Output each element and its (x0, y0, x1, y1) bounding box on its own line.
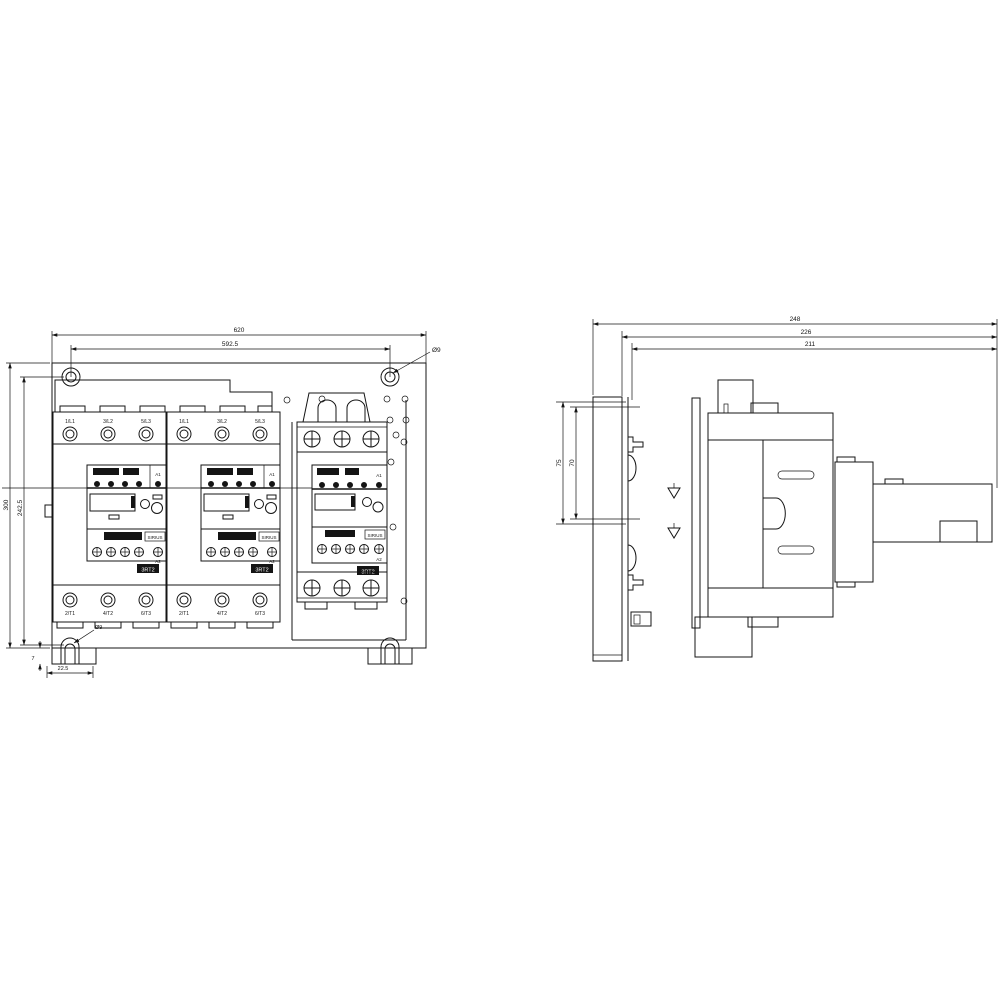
dim-side-height-outer: 75 (556, 402, 626, 524)
rating-label-bar (325, 530, 355, 537)
grip-notch (763, 498, 785, 529)
aux-screw-row (319, 482, 382, 488)
busbar-screw (304, 580, 379, 596)
dim-label: Ø9 (95, 625, 102, 631)
terminal-label: 1/L1 (65, 419, 75, 425)
busbar-bracket (873, 484, 992, 542)
aux-label-bar (123, 468, 139, 475)
terminal-label: 6/T3 (255, 611, 265, 617)
latch-spring (628, 545, 636, 571)
mount-marker (668, 528, 680, 538)
top-terminal-cover (718, 380, 753, 413)
coil-terminal-a2: A2 (376, 557, 382, 562)
dim-label: 248 (790, 316, 801, 323)
dim-front-height-outer: 300 (3, 363, 50, 648)
brand-label: SIRIUS (261, 535, 276, 540)
dimensional-drawing: 1/L1 3/L2 5/L3 A1 (0, 0, 1000, 1000)
drawing-sheet: 1/L1 3/L2 5/L3 A1 (0, 0, 1000, 1000)
type-label: 3RT2 (141, 568, 154, 574)
terminal-label: 3/L2 (103, 419, 113, 425)
contactor-profile (695, 380, 833, 657)
dim-label: 242.5 (17, 499, 24, 516)
callout-corner-hole: Ø9 (393, 347, 441, 373)
nameplate-window (204, 494, 249, 511)
contactor-module: A1 SIRIUS (87, 465, 166, 564)
contactor-module: A1 SIRIUS (201, 465, 280, 564)
terminal-label: 4/T2 (103, 611, 113, 617)
aux-label-bar (207, 468, 233, 475)
terminal-screw (177, 427, 267, 441)
aux-label-bar (345, 468, 359, 475)
contactor-module: A1 SIRIUS (312, 465, 387, 563)
indicator-button (373, 502, 383, 512)
terminal-label: 4/T2 (217, 611, 227, 617)
terminal-label: 6/T3 (141, 611, 151, 617)
dim-side-height-inner: 70 (569, 407, 640, 519)
din-clip-bottom (628, 575, 643, 590)
rating-label-bar (104, 532, 142, 540)
dim-label: 300 (3, 499, 10, 510)
dim-side-depth-mid: 226 (622, 329, 997, 396)
brand-label: SIRIUS (367, 533, 382, 538)
plate-edge (593, 397, 622, 661)
aux-label-bar (93, 468, 119, 475)
terminal-screw (63, 427, 153, 441)
dim-label: 592.5 (222, 341, 239, 348)
indicator-button (363, 498, 372, 507)
nameplate-window (315, 494, 355, 510)
front-view: 1/L1 3/L2 5/L3 A1 (2, 327, 441, 678)
coil-terminal-a1: A1 (155, 472, 161, 477)
dim-front-width-outer: 620 (52, 327, 426, 363)
indicator-button (255, 500, 264, 509)
dim-label: 211 (805, 341, 816, 348)
dim-label: 75 (556, 459, 563, 467)
dim-label: 226 (801, 329, 812, 336)
terminal-label: 3/L2 (217, 419, 227, 425)
dim-label: 620 (234, 327, 245, 334)
terminal-cover (55, 380, 272, 412)
coil-terminal-a1: A1 (269, 472, 275, 477)
coil-screw-row (207, 548, 277, 557)
bottom-foot (695, 617, 752, 657)
indicator-button (141, 500, 150, 509)
keyhole-foot-left (52, 638, 96, 664)
busbar-screw (304, 431, 379, 447)
dim-front-foot-width: 22.5 (47, 666, 93, 678)
aux-label-bar (237, 468, 253, 475)
terminal-label: 1/L1 (179, 419, 189, 425)
terminal-screw (63, 593, 153, 607)
contactor-left: 1/L1 3/L2 5/L3 A1 (53, 412, 166, 628)
dim-label: 7 (31, 656, 34, 662)
dim-label: Ø9 (432, 347, 441, 354)
terminal-extension (835, 457, 992, 587)
side-view: 248 226 211 75 70 (556, 316, 997, 661)
mounting-plate (2, 363, 426, 664)
indicator-button (152, 503, 163, 514)
dim-front-foot-height: 7 (31, 641, 40, 671)
coil-terminal-a1: A1 (376, 473, 382, 478)
terminal-screw (177, 593, 267, 607)
aux-label-bar (317, 468, 339, 475)
keyhole-foot-right (368, 638, 412, 664)
rating-label-bar (218, 532, 256, 540)
vent-slot (778, 471, 814, 479)
contactor-middle: 1/L1 3/L2 5/L3 A1 (167, 412, 280, 628)
coil-screw-row (93, 548, 163, 557)
din-rail-adapter (628, 397, 651, 661)
dim-label: 22.5 (58, 666, 69, 672)
mount-marker (668, 488, 680, 498)
terminal-label: 5/L3 (255, 419, 265, 425)
aux-screw-row (94, 481, 161, 487)
dim-front-height-inner: 242.5 (17, 377, 64, 645)
contactor-right: A1 SIRIUS (297, 393, 387, 609)
dim-side-depth-inner: 211 (632, 341, 997, 400)
dim-label: 70 (569, 459, 576, 467)
rear-member (668, 398, 700, 628)
type-label: 3RT2 (255, 568, 268, 574)
nameplate-window (90, 494, 135, 511)
indicator-button (266, 503, 277, 514)
din-clip-top (628, 437, 643, 452)
vent-slot (778, 546, 814, 554)
terminal-label: 5/L3 (141, 419, 151, 425)
brand-label: SIRIUS (147, 535, 162, 540)
latch-spring (628, 455, 636, 481)
dim-front-width-inner: 592.5 (71, 341, 390, 377)
dim-side-depth-overall: 248 (593, 316, 997, 488)
aux-screw-row (208, 481, 275, 487)
coil-screw-row (318, 545, 384, 554)
terminal-label: 2/T1 (65, 611, 75, 617)
terminal-label: 2/T1 (179, 611, 189, 617)
